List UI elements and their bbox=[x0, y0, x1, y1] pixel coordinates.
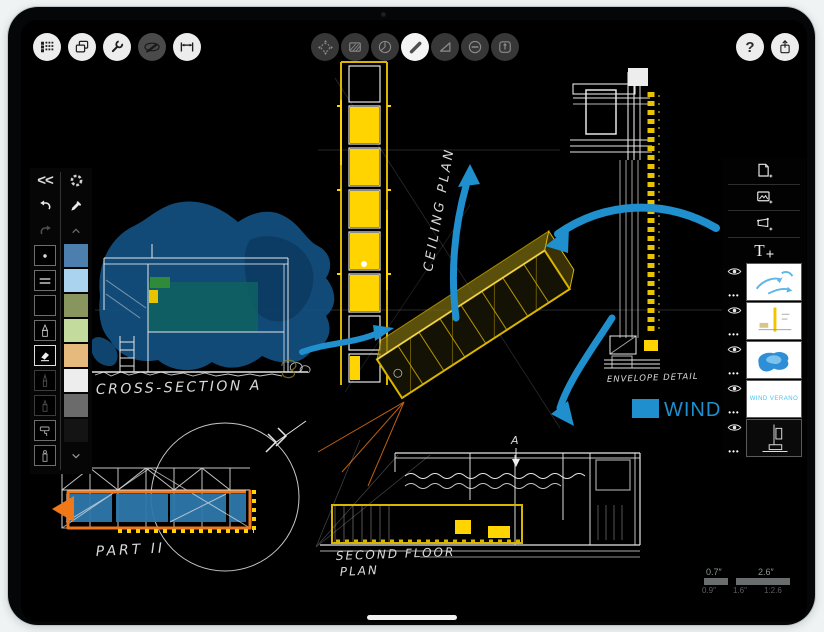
draw-button[interactable] bbox=[401, 33, 429, 61]
palette-colors-column bbox=[61, 168, 91, 474]
color-swatch-7[interactable] bbox=[64, 394, 88, 417]
svg-text:0.7″: 0.7″ bbox=[706, 567, 723, 577]
fill-button[interactable] bbox=[341, 33, 369, 61]
help-button[interactable]: ? bbox=[736, 33, 764, 61]
fine-liner-icon bbox=[37, 398, 53, 414]
plus-icon bbox=[766, 250, 774, 258]
stamp-button[interactable] bbox=[491, 33, 519, 61]
measure-button[interactable] bbox=[173, 33, 201, 61]
color-swatch-2[interactable] bbox=[64, 269, 88, 292]
pages-icon bbox=[73, 38, 91, 56]
add-page-icon bbox=[754, 161, 774, 181]
add-frame-button[interactable] bbox=[722, 211, 806, 237]
add-frame-icon bbox=[754, 214, 774, 234]
svg-text:2.6″: 2.6″ bbox=[758, 567, 775, 577]
layer-thumbnail-massing[interactable] bbox=[746, 341, 802, 379]
color-swatch-6[interactable] bbox=[64, 369, 88, 392]
scroll-colors-down-button[interactable] bbox=[61, 443, 91, 468]
stylus-button[interactable] bbox=[138, 33, 166, 61]
envelope-detail-sketch: ENVELOPE DETAIL bbox=[570, 68, 699, 385]
svg-text:1.6″: 1.6″ bbox=[733, 586, 747, 595]
eyedropper-button[interactable] bbox=[61, 193, 91, 218]
technical-pen-icon bbox=[37, 323, 53, 339]
add-text-button[interactable]: T bbox=[722, 238, 806, 264]
label-envelope-detail: ENVELOPE DETAIL bbox=[607, 372, 699, 385]
color-swatch-8[interactable] bbox=[64, 419, 88, 442]
move-icon bbox=[316, 38, 335, 57]
layer-options-icon[interactable]: ••• bbox=[728, 410, 739, 416]
color-swatch-5[interactable] bbox=[64, 344, 88, 367]
add-image-button[interactable] bbox=[722, 185, 806, 211]
label-second-floor-1: SECOND FLOOR bbox=[336, 545, 456, 563]
triangle-icon bbox=[436, 38, 454, 56]
wrench-icon bbox=[108, 38, 126, 56]
chevron-down-icon bbox=[68, 448, 84, 464]
svg-text:1:2.6: 1:2.6 bbox=[764, 586, 782, 595]
undo-icon bbox=[37, 197, 54, 214]
color-wheel-button[interactable] bbox=[61, 168, 91, 193]
layer-thumbnail-wind-text[interactable]: WIND VERANO bbox=[746, 380, 802, 418]
palette-tools-column: << bbox=[30, 168, 60, 474]
second-floor-plan: A SECOND FLOOR PLAN bbox=[316, 434, 640, 579]
transform-button[interactable] bbox=[311, 33, 339, 61]
solid-brush-icon bbox=[37, 298, 53, 314]
color-wheel-icon bbox=[68, 172, 85, 189]
layer-row-arrows[interactable]: ••• bbox=[722, 263, 806, 302]
share-icon bbox=[776, 38, 794, 56]
eye-icon[interactable] bbox=[727, 305, 742, 316]
redo-button[interactable] bbox=[30, 218, 60, 243]
layer-row-massing[interactable]: ••• bbox=[722, 341, 806, 380]
tool-eraser[interactable] bbox=[34, 345, 56, 366]
svg-text:A: A bbox=[510, 434, 519, 447]
eye-icon[interactable] bbox=[727, 422, 742, 433]
undo-button[interactable] bbox=[30, 193, 60, 218]
add-page-button[interactable] bbox=[722, 158, 806, 184]
stylus-icon bbox=[142, 37, 162, 57]
eraser-icon bbox=[37, 348, 53, 364]
double-line-icon bbox=[37, 273, 53, 289]
tool-dot-brush[interactable] bbox=[34, 245, 56, 266]
eye-icon[interactable] bbox=[727, 383, 742, 394]
drawing-canvas[interactable]: CROSS-SECTION A bbox=[21, 20, 807, 622]
layer-row-wind-text[interactable]: ••• WIND VERANO bbox=[722, 380, 806, 419]
layer-thumbnail-arrows[interactable] bbox=[746, 263, 802, 301]
eye-icon[interactable] bbox=[727, 266, 742, 277]
duct-perspective-lines bbox=[318, 402, 404, 486]
color-swatch-4[interactable] bbox=[64, 319, 88, 342]
eyedropper-icon bbox=[68, 198, 84, 214]
add-text-icon: T bbox=[754, 242, 764, 259]
layer-options-icon[interactable]: ••• bbox=[728, 449, 739, 455]
tool-airbrush-marker[interactable] bbox=[34, 445, 56, 466]
hatch-icon bbox=[346, 38, 364, 56]
layer-options-icon[interactable]: ••• bbox=[728, 293, 739, 299]
tool-technical-pen[interactable] bbox=[34, 320, 56, 341]
scale-bar: 0.7″ 2.6″ 0.9″ 1.6″ 1:2.6 bbox=[702, 567, 790, 595]
north-marker: A bbox=[510, 434, 520, 467]
pencil-icon bbox=[37, 373, 53, 389]
scroll-colors-up-button[interactable] bbox=[61, 218, 91, 243]
home-indicator[interactable] bbox=[367, 615, 457, 620]
collapse-palette-button[interactable]: << bbox=[30, 168, 60, 193]
color-swatch-1[interactable] bbox=[64, 244, 88, 267]
airbrush-marker-icon bbox=[37, 448, 53, 464]
tool-solid-brush[interactable] bbox=[34, 295, 56, 316]
axonometric-duct bbox=[369, 231, 581, 398]
tool-palette: << bbox=[30, 168, 92, 474]
tool-paint-roller[interactable] bbox=[34, 420, 56, 441]
eye-icon[interactable] bbox=[727, 344, 742, 355]
pen-stroke-icon bbox=[406, 38, 425, 57]
eraser-circle-icon bbox=[466, 38, 484, 56]
app-screen: CROSS-SECTION A bbox=[21, 20, 807, 622]
label-second-floor-2: PLAN bbox=[339, 563, 379, 579]
color-swatch-3[interactable] bbox=[64, 294, 88, 317]
paint-roller-icon bbox=[37, 423, 53, 439]
redo-icon bbox=[37, 222, 54, 239]
layer-thumbnail-ceiling[interactable] bbox=[746, 302, 802, 340]
help-icon: ? bbox=[745, 39, 754, 56]
label-cross-section: CROSS-SECTION A bbox=[96, 378, 262, 398]
svg-text:0.9″: 0.9″ bbox=[702, 586, 716, 595]
layer-thumbnail-base-drawing[interactable] bbox=[746, 419, 802, 457]
label-part-two: PART II bbox=[95, 540, 165, 560]
layer-row-base-drawing[interactable]: ••• bbox=[722, 419, 806, 458]
erase-button[interactable] bbox=[461, 33, 489, 61]
front-camera bbox=[381, 12, 386, 17]
tool-pencil[interactable] bbox=[34, 370, 56, 391]
protractor-button[interactable] bbox=[371, 33, 399, 61]
layers-panel: T ••• bbox=[722, 158, 806, 458]
tool-fine-liner[interactable] bbox=[34, 395, 56, 416]
projects-button[interactable] bbox=[33, 33, 61, 61]
layer-options-icon[interactable]: ••• bbox=[728, 332, 739, 338]
protractor-icon bbox=[376, 38, 394, 56]
layer-options-icon[interactable]: ••• bbox=[728, 371, 739, 377]
stamp-icon bbox=[496, 38, 514, 56]
menu-grid-icon bbox=[38, 38, 56, 56]
pages-button[interactable] bbox=[68, 33, 96, 61]
measure-icon bbox=[178, 38, 196, 56]
ruler-button[interactable] bbox=[431, 33, 459, 61]
layer-row-ceiling-plan[interactable]: ••• bbox=[722, 302, 806, 341]
add-image-icon bbox=[754, 187, 774, 207]
chevron-up-icon bbox=[68, 223, 84, 239]
settings-button[interactable] bbox=[103, 33, 131, 61]
share-button[interactable] bbox=[771, 33, 799, 61]
tool-double-line[interactable] bbox=[34, 270, 56, 291]
dot-brush-icon bbox=[37, 248, 53, 264]
